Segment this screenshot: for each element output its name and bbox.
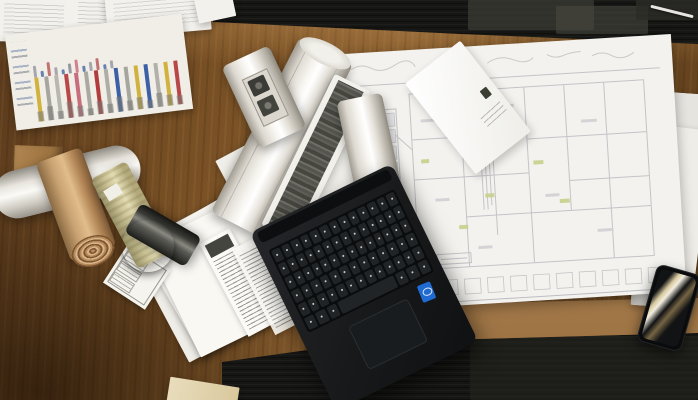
carpet-patch [556,6,648,34]
chart-base-bar [127,100,134,111]
chart-base-bar [166,94,173,106]
roll-label [103,183,123,202]
chart-base-bar [116,96,124,112]
chart-base-bar [77,105,84,117]
small-sheet [194,0,237,24]
print-square [247,74,270,97]
chart-base-bar [107,104,114,114]
chart-stripe [64,74,73,118]
chart-stripe [104,69,113,113]
chart-stripe [114,68,123,112]
chart-base-bar [176,95,183,105]
envelope-address-lines [478,99,507,127]
chart-base-bar [147,100,154,109]
chart-stripe [173,60,182,104]
chart-stripe [143,64,152,108]
chart-stripe [54,75,63,119]
chart-stripe [133,65,142,109]
chart-base-bar [57,111,64,120]
envelope-logo [480,87,492,100]
chart-base-bar [97,101,105,115]
chart-base-bar [136,97,143,110]
chart-base-bar [66,101,74,118]
chart-stripe [34,77,43,121]
chart-stripe [44,76,53,120]
print-square [256,94,279,117]
photo-architect-desk [0,0,698,400]
printed-panel [242,68,289,127]
chart-base-bar [87,108,94,116]
chart-stripe [153,63,162,107]
processor-sticker [417,281,437,303]
chart-stripe [124,66,133,110]
chart-stripe [94,70,103,114]
chart-base-bar [156,92,164,107]
laptop-touchpad [348,298,428,370]
dark-roll-spiral-end [122,220,174,272]
chart-stripe [84,71,93,115]
chart-base-bar [47,106,55,121]
chart-stripe [74,73,83,117]
chart-stripe [163,62,172,106]
chart-base-bar [37,111,44,122]
